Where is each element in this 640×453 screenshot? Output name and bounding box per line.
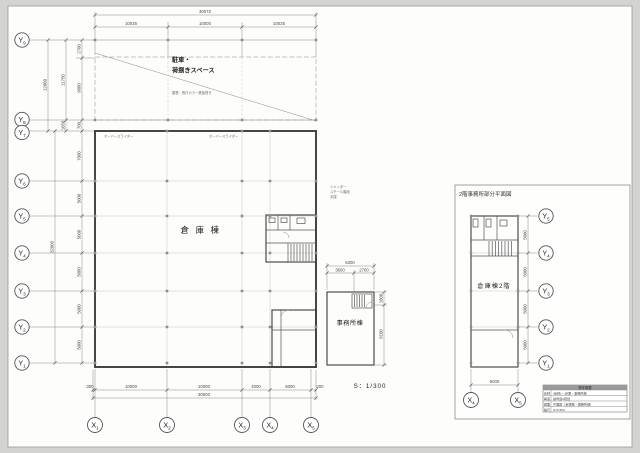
dim-bot-5: 200: [316, 384, 324, 389]
title-block-r1c2: (仮称)○○倉庫・事務所棟: [553, 390, 588, 395]
panel-grid-label-y2: Y2: [539, 320, 553, 334]
scale-label: S：1/300: [354, 383, 387, 390]
panel-grid-label-y3: Y3: [539, 284, 553, 298]
dim-7000: 7000: [77, 151, 82, 161]
second-floor-panel: 2階事務所部分平面図 倉庫棟2階: [455, 185, 630, 419]
dim-bay-4: 5000: [77, 304, 82, 314]
dim-1050: 1050: [61, 120, 66, 130]
panel-dim-bay-1: 5000: [523, 230, 528, 240]
grid-label-x2: X2: [160, 418, 175, 433]
dim-office-total: 6300: [345, 260, 355, 265]
warehouse-label: 倉庫棟: [180, 225, 225, 235]
dim-bot-1: 10000: [125, 384, 138, 389]
dim-top-2: 10000: [199, 21, 212, 26]
dim-9000: 9000: [77, 83, 82, 93]
dim-bay-1: 5000: [77, 193, 82, 203]
dim-top-1: 10035: [125, 21, 138, 26]
dim-office-1: 3600: [335, 268, 345, 273]
panel-grid-label-y4: Y4: [539, 246, 553, 260]
dim-bay-5: 5000: [77, 340, 82, 350]
dim-bay-3: 5000: [77, 267, 82, 277]
dim-700: 700: [77, 121, 82, 129]
dim-bot-3: 4000: [251, 384, 261, 389]
title-block-r2c2: 鉄骨造2階建: [553, 396, 570, 401]
dim-top-3: 10035: [273, 21, 286, 26]
grid-label-x5: X5: [304, 418, 319, 433]
dim-bot-4: 6000: [285, 384, 295, 389]
title-block-r4c1: 縮尺: [544, 407, 550, 412]
dim-left-inner: 11750: [61, 74, 66, 86]
panel-dim-bay-2: 5000: [523, 267, 528, 277]
panel-grid-label-x4: X4: [464, 393, 479, 408]
title-block-r3c1: 図面: [544, 402, 550, 406]
panel-dim-bay-4: 5000: [523, 340, 528, 350]
grid-label-x4: X4: [263, 418, 278, 433]
grid-label-y1: Y1: [15, 356, 29, 370]
panel-title: 2階事務所部分平面図: [459, 190, 512, 198]
grid-label-y8: Y8: [15, 112, 29, 126]
office-label: 事務所棟: [337, 319, 364, 327]
dim-office-r1: 1800: [379, 293, 384, 303]
grid-label-x1: X1: [88, 418, 103, 433]
title-block-r1c1: 名称: [544, 390, 550, 395]
overhead-door-label-1: オーバースライダー: [104, 134, 133, 139]
dim-left-total: 32000: [50, 240, 55, 253]
grid-label-y7: Y7: [15, 125, 29, 139]
dim-top-total: 30070: [199, 9, 212, 14]
dim-office-r2: 8100: [379, 329, 384, 339]
title-block-header: 物件概要: [578, 385, 592, 390]
canopy-label-line2: 荷捌きスペース: [171, 67, 215, 75]
title-block-r4c2: S=1/300: [553, 408, 565, 412]
title-block: 物件概要 名称 (仮称)○○倉庫・事務所棟 構造 鉄骨造2階建 図面 平面図（倉…: [543, 385, 627, 412]
title-block-r3c2: 平面図（倉庫棟・事務所棟）: [553, 401, 593, 406]
note-1: シャッター: [330, 184, 346, 189]
grid-label-y9: Y9: [15, 33, 29, 47]
canopy-label-line1: 駐車・: [172, 56, 191, 64]
grid-label-y5: Y5: [15, 209, 29, 223]
grid-label-y3: Y3: [15, 284, 29, 298]
grid-label-y6: Y6: [15, 174, 29, 188]
dim-bot-0: 300: [86, 384, 94, 389]
panel-grid-label-y5: Y5: [539, 209, 553, 223]
panel-grid-label-y1: Y1: [539, 356, 553, 370]
drawing-sheet-stage: 30070 10035 10000 10035 12800 11750: [0, 0, 640, 453]
grid-label-x3: X3: [235, 418, 250, 433]
panel-plan-label: 倉庫棟2階: [477, 282, 510, 290]
dim-office-2: 2700: [359, 268, 369, 273]
overhead-door-label-2: オーバースライダー: [209, 134, 238, 139]
dim-2700: 2700: [77, 44, 82, 54]
dim-left-outer: 12800: [43, 78, 48, 91]
grid-label-y2: Y2: [15, 320, 29, 334]
title-block-r2c1: 構造: [544, 396, 550, 401]
panel-grid-label-x5: X5: [511, 393, 526, 408]
note-2: スチール階段: [330, 189, 350, 194]
grid-label-y4: Y4: [15, 246, 29, 260]
note-3: 手摺: [330, 194, 337, 199]
panel-dim-bottom: 6000: [490, 379, 500, 384]
roof-note: 屋根：長尺カラー鉄板葺き: [172, 90, 212, 95]
dim-bot-2: 10000: [198, 384, 211, 389]
dim-bay-2: 5000: [77, 229, 82, 239]
dim-bot-total: 30500: [198, 392, 211, 397]
panel-dim-bay-3: 5000: [523, 304, 528, 314]
